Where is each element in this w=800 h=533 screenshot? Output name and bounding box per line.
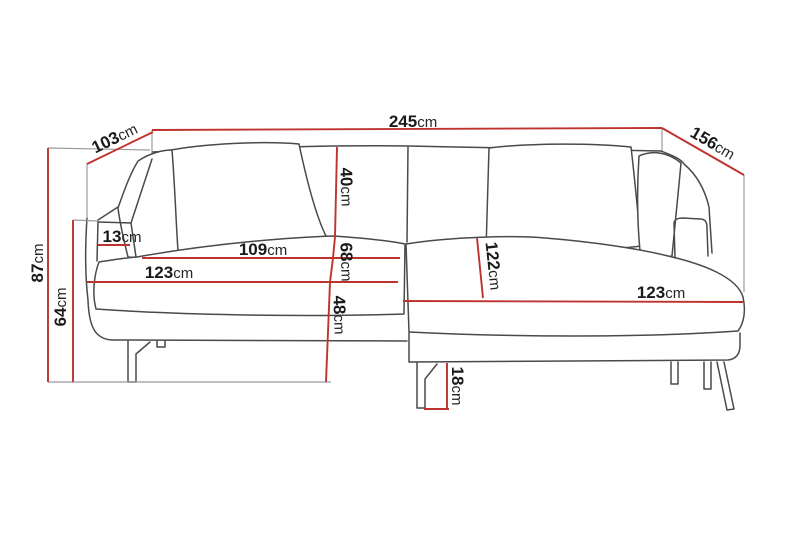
label-height-total: 87cm: [28, 244, 47, 283]
label-seat-width-right: 123cm: [637, 283, 685, 302]
label-total-width: 245cm: [389, 112, 437, 131]
chaise-middle-right-leg: [704, 362, 711, 389]
chaise-back-leg: [671, 362, 678, 384]
diagram-canvas: 245cm 103cm 156cm 87cm 64cm 13cm 40cm 68…: [0, 0, 800, 533]
sofa-dimension-diagram: 245cm 103cm 156cm 87cm 64cm 13cm 40cm 68…: [0, 0, 800, 533]
label-inner-depth: 68cm: [336, 242, 356, 282]
chaise-base: [409, 333, 740, 362]
left-armrest-top-edge: [98, 207, 118, 220]
sofa-back-seam: [407, 147, 408, 242]
label-height-armrest: 64cm: [51, 288, 70, 327]
back-left-leg: [157, 341, 165, 347]
back-cushion-left-large: [166, 143, 326, 251]
front-left-leg: [128, 341, 150, 382]
right-armrest-inner-panel: [674, 218, 708, 258]
back-cushion-right-large: [486, 144, 641, 251]
helper-armrest-tick: [73, 220, 98, 221]
label-seat-depth: 109cm: [239, 240, 287, 259]
chaise-seat-cushion: [406, 237, 744, 336]
left-armrest-front-top: [98, 222, 131, 223]
label-leg-height: 18cm: [448, 367, 467, 406]
label-back-cushion: 40cm: [336, 167, 356, 207]
label-armrest-width: 13cm: [103, 227, 142, 246]
chaise-front-left-leg: [417, 363, 437, 408]
left-armrest-front-left-edge: [97, 222, 98, 261]
label-seat-width-left: 123cm: [145, 263, 193, 282]
chaise-front-right-leg: [717, 362, 734, 410]
label-seat-height: 48cm: [329, 295, 349, 335]
dim-line-seat-width-right: [403, 301, 743, 302]
